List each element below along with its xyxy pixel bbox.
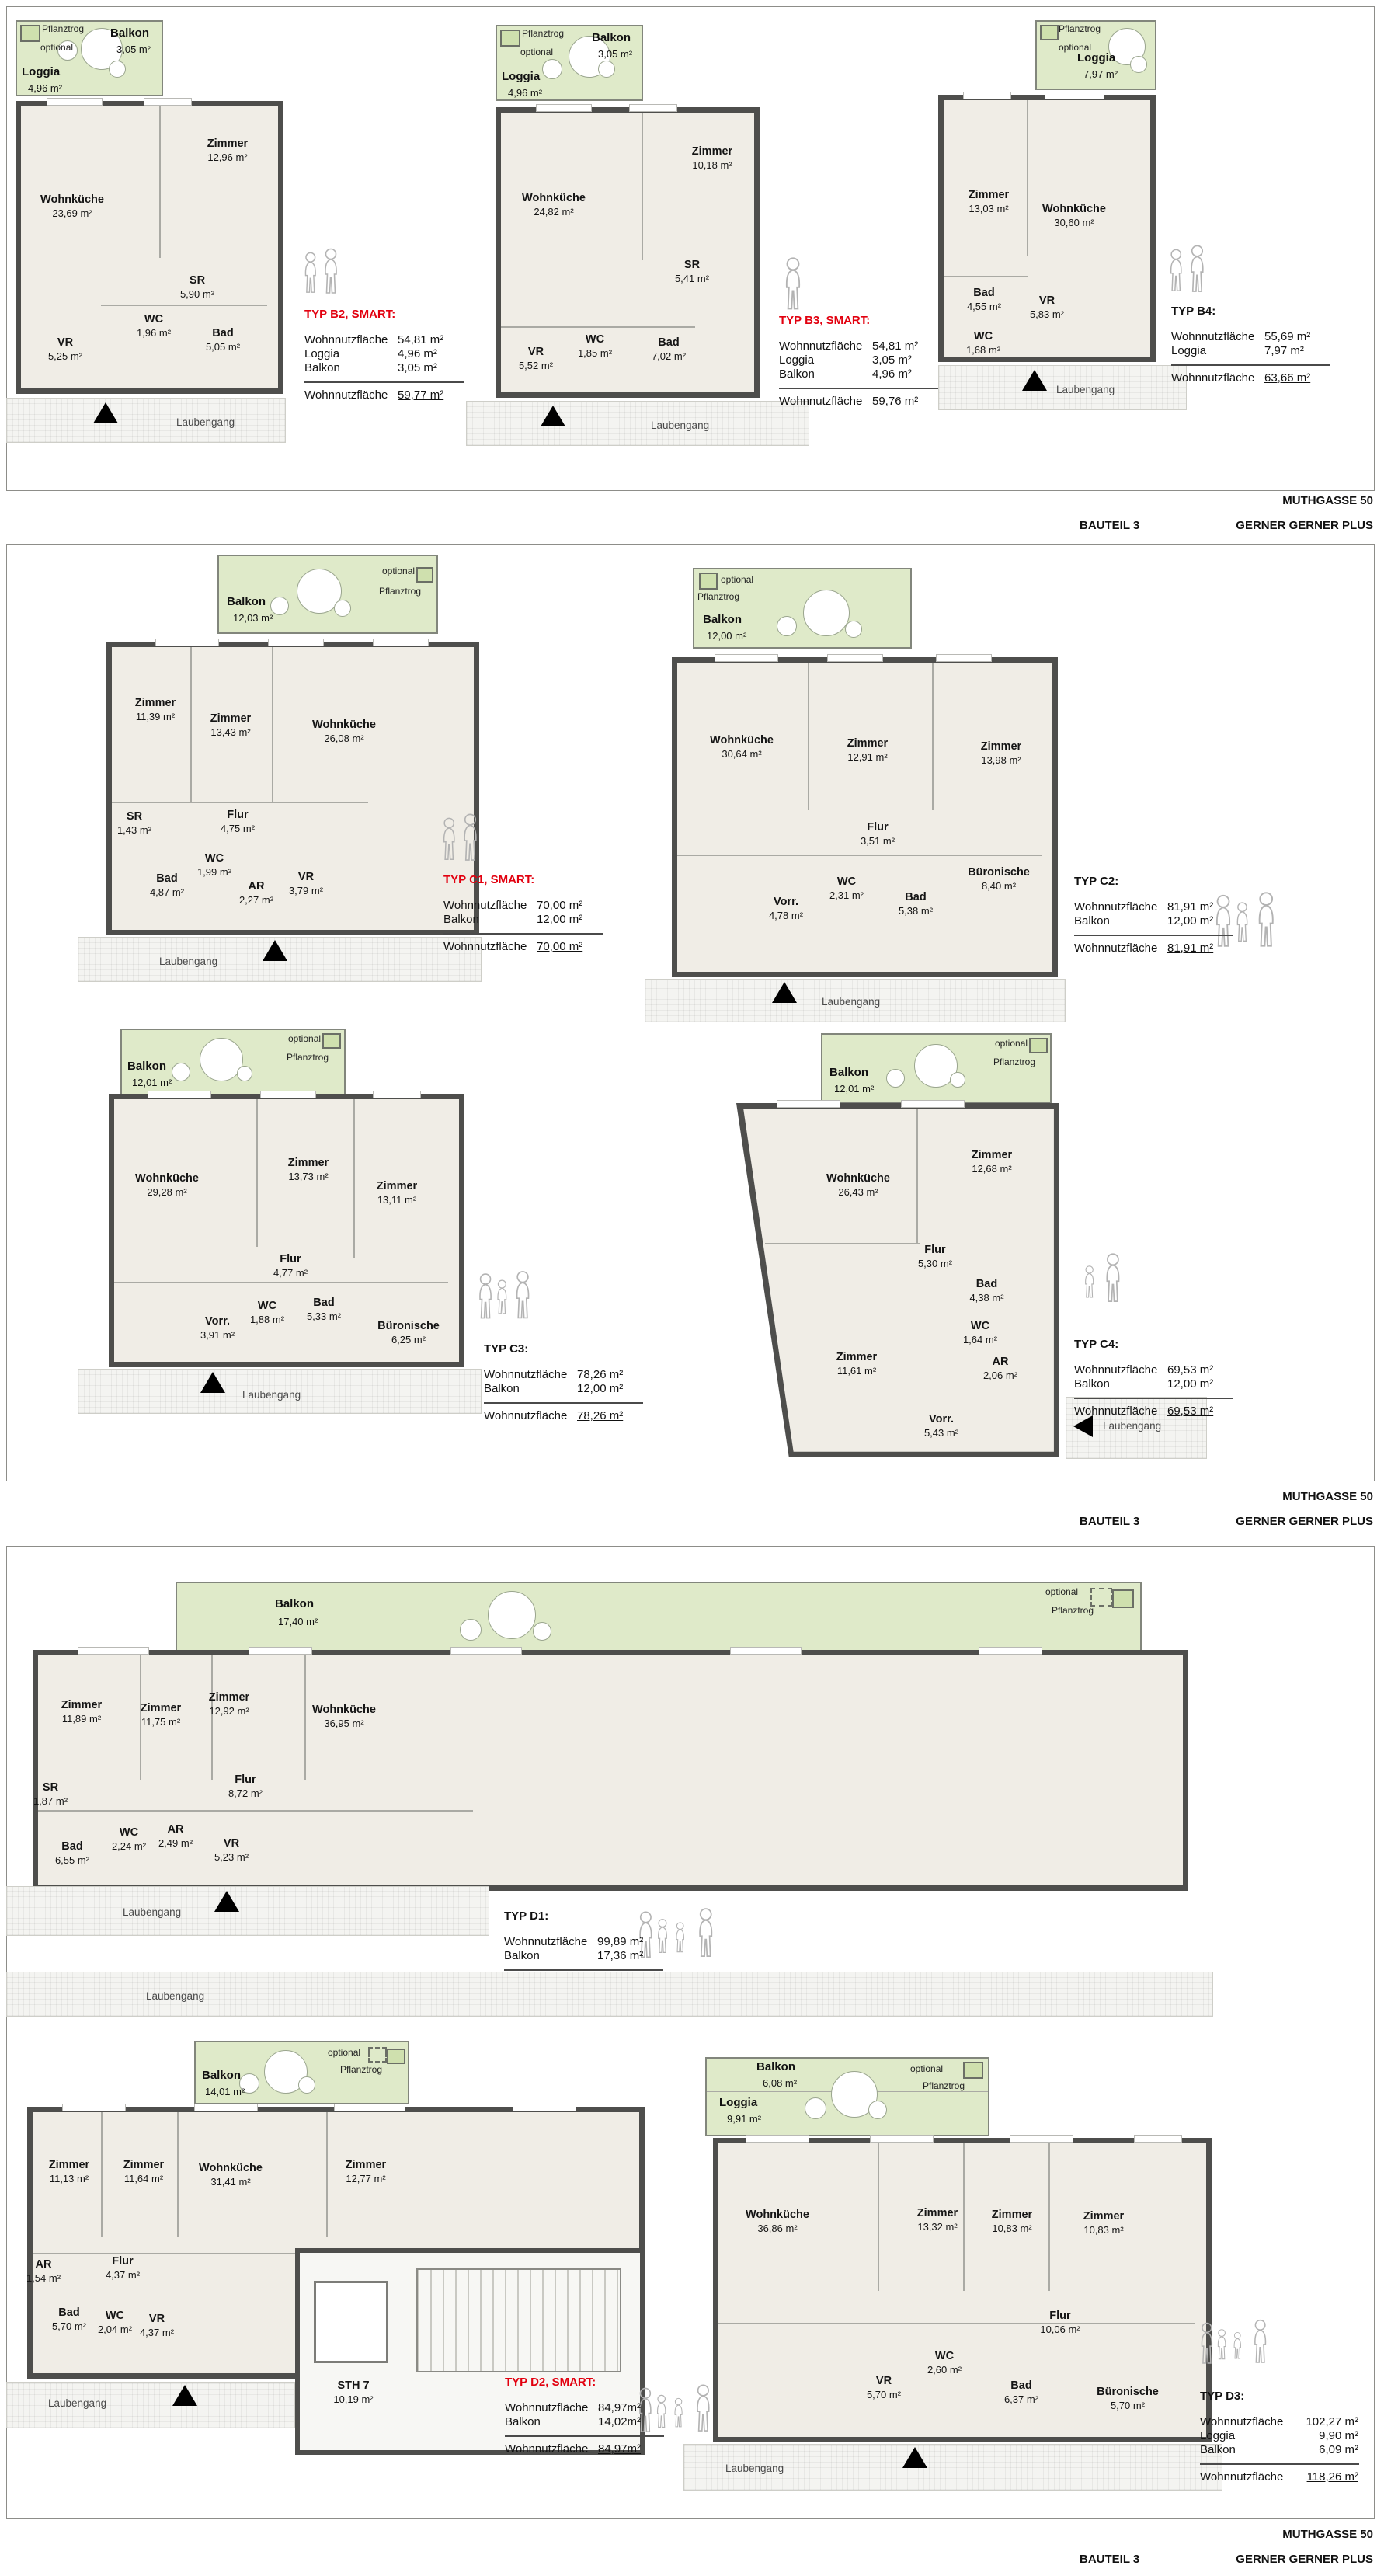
tree-icon (1130, 56, 1147, 73)
loggia-label: Loggia (1077, 51, 1115, 64)
room-label: Zimmer10,83 m² (1069, 2209, 1139, 2237)
bauteil-label: BAUTEIL 3 (1080, 1515, 1139, 1528)
tree-icon (460, 1619, 482, 1641)
laubengang-label: Laubengang (159, 956, 217, 967)
balcony-area-c4: optional Pflanztrog Balkon 12,01 m² (821, 1033, 1052, 1103)
room-label: WC1,96 m² (130, 312, 177, 340)
room-label: Zimmer10,18 m² (677, 144, 747, 172)
entry-arrow-icon (263, 940, 287, 961)
wall (353, 1099, 355, 1258)
balkon-area: 3,05 m² (598, 48, 632, 60)
laubengang-label: Laubengang (176, 416, 235, 428)
room-label: Bad5,33 m² (297, 1296, 351, 1324)
bauteil-label: BAUTEIL 3 (1080, 2553, 1139, 2566)
type-title: TYP B2, SMART: (304, 308, 483, 321)
room-label: Zimmer11,89 m² (48, 1698, 115, 1726)
tree-icon (488, 1591, 536, 1639)
people-silhouette (440, 805, 482, 872)
type-title: TYP C2: (1074, 875, 1253, 888)
planter-icon (1040, 25, 1059, 40)
entry-arrow-icon (93, 402, 118, 423)
balkon-label: Balkon (110, 26, 149, 40)
planter-outline-icon (1090, 1588, 1112, 1607)
entry-arrow-icon (1073, 1415, 1093, 1437)
pflanztrog-label: Pflanztrog (42, 23, 84, 34)
tree-icon (805, 2097, 826, 2119)
room-label: Zimmer12,68 m² (957, 1148, 1027, 1176)
room-label: Flur4,37 m² (99, 2254, 146, 2282)
wall (159, 106, 161, 258)
divider (484, 1402, 643, 1404)
room-label: Zimmer12,77 m² (331, 2158, 401, 2186)
window (249, 1647, 312, 1655)
window (827, 654, 883, 662)
bauteil-label: BAUTEIL 3 (1080, 519, 1139, 532)
tree-icon (886, 1069, 905, 1088)
window (979, 1647, 1042, 1655)
window (936, 654, 992, 662)
room-label: Flur5,30 m² (912, 1243, 958, 1271)
window (450, 1647, 522, 1655)
wall (1048, 2143, 1050, 2291)
room-label: Flur10,06 m² (1033, 2309, 1087, 2337)
room-label: Wohnküche29,28 m² (124, 1171, 210, 1199)
window (730, 1647, 802, 1655)
balkon-area: 3,05 m² (116, 44, 151, 55)
window (334, 2104, 405, 2111)
floorplan-sheet: Pflanztrog optional Balkon 3,05 m² Loggi… (0, 0, 1398, 2576)
laubengang-d1 (6, 1886, 489, 1936)
wall (326, 2112, 328, 2237)
project-name: MUTHGASSE 50 (1282, 494, 1373, 507)
laubengang-label: Laubengang (146, 1990, 204, 2002)
tree-icon (542, 59, 562, 79)
room-label: WC2,60 m² (921, 2349, 968, 2377)
window (715, 654, 778, 662)
room-label: Flur8,72 m² (222, 1773, 269, 1801)
type-info-c1: TYP C1, SMART: Wohnnutzfläche70,00 m² Ba… (443, 873, 622, 954)
room-label: Wohnküche36,86 m² (735, 2208, 820, 2236)
laubengang-label: Laubengang (48, 2397, 106, 2409)
room-label: SR1,43 m² (112, 809, 157, 837)
optional-label: optional (721, 574, 753, 585)
wall (878, 2143, 879, 2291)
room-label: Zimmer11,13 m² (36, 2158, 103, 2186)
type-title: TYP D3: (1200, 2390, 1379, 2403)
balkon-label: Balkon (202, 2069, 241, 2082)
room-label: Flur4,77 m² (267, 1252, 314, 1280)
pflanztrog-label: Pflanztrog (697, 591, 739, 602)
room-label: Zimmer13,98 m² (966, 740, 1036, 768)
type-info-c4: TYP C4: Wohnnutzfläche69,53 m² Balkon12,… (1074, 1338, 1253, 1419)
window (373, 1091, 421, 1098)
divider (1074, 935, 1233, 936)
room-label: Zimmer13,03 m² (954, 188, 1024, 216)
room-label: Zimmer13,32 m² (902, 2206, 972, 2234)
loggia-area: 4,96 m² (28, 82, 62, 94)
room-label: Wohnküche30,64 m² (699, 733, 784, 761)
entry-arrow-icon (772, 982, 797, 1003)
room-label: WC1,88 m² (245, 1299, 289, 1327)
type-info-d2: TYP D2, SMART: Wohnnutzfläche84,97m² Bal… (505, 2376, 683, 2456)
loggia-label: Loggia (719, 2096, 757, 2109)
room-label: Büronische8,40 m² (955, 865, 1042, 893)
room-label: WC1,99 m² (191, 851, 238, 879)
laubengang-label: Laubengang (651, 419, 709, 431)
room-label: SR1,87 m² (28, 1781, 73, 1808)
window (901, 1100, 965, 1108)
loggia-label: Loggia (22, 65, 60, 78)
window (1010, 2135, 1073, 2143)
tree-icon (868, 2101, 887, 2119)
type-info-b3: TYP B3, SMART: Wohnnutzfläche54,81 m² Lo… (779, 314, 958, 409)
balkon-label: Balkon (829, 1066, 868, 1079)
balkon-area: 12,00 m² (707, 630, 746, 642)
wall (501, 326, 695, 328)
wall (677, 855, 1042, 856)
entry-arrow-icon (902, 2447, 927, 2468)
window (144, 98, 192, 106)
tree-icon (237, 1066, 252, 1081)
loggia-label: Loggia (502, 70, 540, 83)
optional-label: optional (995, 1038, 1028, 1049)
divider (443, 933, 603, 935)
balkon-area: 12,01 m² (132, 1077, 172, 1088)
entry-arrow-icon (1022, 370, 1047, 391)
window (155, 639, 219, 646)
wall (256, 1099, 258, 1247)
planter-icon (322, 1033, 341, 1049)
balcony-area-b2: Pflanztrog optional Balkon 3,05 m² Loggi… (16, 20, 163, 96)
room-label: Wohnküche23,69 m² (30, 193, 115, 221)
planter-icon (963, 2062, 983, 2079)
tree-icon (270, 597, 289, 615)
window (194, 2104, 258, 2111)
room-label: Zimmer12,96 m² (193, 137, 263, 165)
pflanztrog-label: Pflanztrog (1059, 23, 1101, 34)
room-label: Bad6,55 m² (45, 1840, 99, 1868)
window (62, 2104, 126, 2111)
room-label: Wohnküche30,60 m² (1031, 202, 1117, 230)
entry-arrow-icon (214, 1891, 239, 1912)
wall (101, 305, 267, 306)
pflanztrog-label: Pflanztrog (522, 28, 564, 39)
tree-icon (533, 1622, 551, 1641)
type-info-b4: TYP B4: Wohnnutzfläche55,69 m² Loggia7,9… (1171, 305, 1350, 385)
room-label: Bad4,38 m² (962, 1277, 1012, 1305)
room-label: Bad6,37 m² (996, 2379, 1047, 2407)
window (777, 1100, 840, 1108)
balcony-area-c3: optional Pflanztrog Balkon 12,01 m² (120, 1029, 346, 1095)
optional-label: optional (40, 42, 73, 53)
room-label: Wohnküche26,08 m² (301, 718, 387, 746)
room-label: Wohnküche31,41 m² (188, 2161, 273, 2189)
wall (38, 1810, 473, 1812)
people-silhouette (1081, 1248, 1125, 1310)
room-label: Zimmer11,39 m² (120, 696, 190, 724)
type-title: TYP B4: (1171, 305, 1350, 318)
room-label: Bad5,70 m² (43, 2306, 95, 2334)
type-info-c2: TYP C2: Wohnnutzfläche81,91 m² Balkon12,… (1074, 875, 1253, 956)
divider (1200, 2463, 1359, 2465)
architect-name: GERNER GERNER PLUS (1236, 519, 1373, 532)
window (513, 2104, 576, 2111)
room-label: VR4,37 m² (134, 2312, 180, 2340)
planter-icon (1112, 1589, 1134, 1608)
room-label: Flur3,51 m² (854, 820, 901, 848)
balcony-area-d3: optional Pflanztrog Balkon 6,08 m² Loggi… (705, 2057, 989, 2136)
pflanztrog-label: Pflanztrog (340, 2064, 382, 2075)
wall (272, 647, 273, 802)
planter-outline-icon (368, 2047, 387, 2063)
laubengang-label: Laubengang (822, 996, 880, 1008)
people-silhouette (1198, 2304, 1272, 2380)
optional-label: optional (520, 47, 553, 57)
loggia-area: 9,91 m² (727, 2113, 761, 2125)
room-label: AR2,06 m² (979, 1355, 1022, 1383)
project-name: MUTHGASSE 50 (1282, 2528, 1373, 2541)
type-info-c3: TYP C3: Wohnnutzfläche78,26 m² Balkon12,… (484, 1342, 662, 1423)
divider (304, 381, 464, 383)
room-label: Zimmer10,83 m² (977, 2208, 1047, 2236)
pflanztrog-label: Pflanztrog (923, 2080, 965, 2091)
tree-icon (777, 616, 797, 636)
room-label: VR5,70 m² (861, 2374, 907, 2402)
room-label: AR2,49 m² (154, 1822, 197, 1850)
window (629, 104, 677, 112)
balcony-area-b3: Pflanztrog optional Balkon 3,05 m² Loggi… (496, 25, 643, 101)
room-label: VR3,79 m² (283, 870, 329, 898)
divider (779, 388, 938, 389)
window (746, 2135, 809, 2143)
tree-icon (598, 61, 615, 78)
window (1045, 92, 1104, 99)
type-title: TYP B3, SMART: (779, 314, 958, 327)
balcony-area-d2: optional Pflanztrog Balkon 14,01 m² (194, 2041, 409, 2104)
wall (177, 2112, 179, 2237)
room-label: WC2,24 m² (106, 1826, 152, 1854)
room-label: Flur4,75 m² (214, 808, 261, 836)
wall (808, 663, 809, 810)
optional-label: optional (910, 2063, 943, 2074)
wall (718, 2323, 1195, 2324)
wall (1027, 100, 1028, 256)
entry-arrow-icon (200, 1372, 225, 1393)
type-title: TYP C1, SMART: (443, 873, 622, 886)
balcony-area-c1: optional Pflanztrog Balkon 12,03 m² (217, 555, 438, 634)
wall (765, 1243, 920, 1244)
elevator (314, 2281, 388, 2363)
balkon-label: Balkon (275, 1597, 314, 1610)
room-label: Bad5,38 m² (889, 890, 943, 918)
tree-icon (334, 600, 351, 617)
wall (114, 1282, 448, 1283)
room-label: Vorr.3,91 m² (194, 1314, 241, 1342)
apartment-c2 (672, 657, 1058, 977)
room-label: WC2,31 m² (823, 875, 870, 903)
architect-name: GERNER GERNER PLUS (1236, 1515, 1373, 1528)
tree-icon (803, 590, 850, 636)
people-silhouette (1167, 236, 1208, 303)
room-label: Wohnküche24,82 m² (511, 191, 596, 219)
laubengang-label: Laubengang (123, 1906, 181, 1918)
planter-icon (416, 567, 433, 583)
type-info-b2: TYP B2, SMART: Wohnnutzfläche54,81 m² Lo… (304, 308, 483, 402)
room-label: Zimmer13,73 m² (273, 1156, 343, 1184)
window (963, 92, 1011, 99)
people-silhouette (781, 250, 805, 315)
room-label: Zimmer13,11 m² (362, 1179, 432, 1207)
wall (916, 1109, 918, 1244)
room-label: Zimmer11,64 m² (110, 2158, 177, 2186)
balkon-label: Balkon (227, 595, 266, 608)
room-label: Bad4,55 m² (957, 286, 1011, 314)
room-label: WC2,04 m² (93, 2309, 137, 2337)
wall (932, 663, 934, 810)
entry-arrow-icon (172, 2385, 197, 2406)
architect-name: GERNER GERNER PLUS (1236, 2553, 1373, 2566)
pflanztrog-label: Pflanztrog (993, 1057, 1035, 1067)
planter-icon (387, 2049, 405, 2064)
balkon-label: Balkon (703, 613, 742, 626)
room-label: Bad5,05 m² (196, 326, 250, 354)
balkon-label: Balkon (592, 31, 631, 44)
type-info-d3: TYP D3: Wohnnutzfläche102,27 m² Loggia9,… (1200, 2390, 1379, 2484)
stairs (416, 2268, 621, 2372)
window (373, 639, 429, 646)
loggia-area: 4,96 m² (508, 87, 542, 99)
balkon-area: 12,01 m² (834, 1083, 874, 1095)
window (268, 639, 324, 646)
divider (504, 1969, 663, 1971)
room-label: Zimmer12,92 m² (194, 1690, 264, 1718)
pflanztrog-label: Pflanztrog (287, 1052, 329, 1063)
wall (944, 276, 1028, 277)
balcony-area-b4: Pflanztrog optional Loggia 7,97 m² (1035, 20, 1156, 90)
planter-icon (20, 25, 40, 42)
balkon-area: 17,40 m² (278, 1616, 318, 1627)
tree-icon (845, 621, 862, 638)
laubengang-label: Laubengang (725, 2463, 784, 2474)
room-label: AR1,54 m² (22, 2257, 65, 2285)
tree-icon (109, 61, 126, 78)
type-title: TYP D1: (504, 1909, 683, 1923)
people-silhouette (475, 1262, 537, 1330)
divider (1171, 364, 1330, 366)
type-title: TYP D2, SMART: (505, 2376, 683, 2389)
wall (112, 802, 368, 803)
room-label: AR2,27 m² (235, 879, 278, 907)
room-label: Zimmer11,75 m² (127, 1701, 194, 1729)
tree-icon (950, 1072, 965, 1088)
balkon-area: 12,03 m² (233, 612, 273, 624)
room-label: Büronische6,25 m² (365, 1319, 452, 1347)
room-label: VR5,25 m² (42, 336, 89, 364)
room-label: WC1,85 m² (572, 332, 618, 360)
balcony-area-c2: optional Pflanztrog Balkon 12,00 m² (693, 568, 912, 649)
wall (642, 113, 643, 260)
room-label: Bad7,02 m² (642, 336, 696, 364)
window (870, 2135, 934, 2143)
divider (505, 2435, 664, 2437)
window (260, 1091, 316, 1098)
optional-label: optional (1045, 1586, 1078, 1597)
room-label: Zimmer11,61 m² (822, 1350, 892, 1378)
window (148, 1091, 211, 1098)
room-label: SR5,90 m² (174, 273, 221, 301)
loggia-area: 7,97 m² (1083, 68, 1118, 80)
room-label: Vorr.4,78 m² (763, 895, 809, 923)
divider (1074, 1398, 1233, 1399)
type-title: TYP C4: (1074, 1338, 1253, 1351)
entry-arrow-icon (541, 406, 565, 426)
balcony-area-d1: optional Pflanztrog Balkon 17,40 m² (176, 1582, 1142, 1652)
pflanztrog-label: Pflanztrog (379, 586, 421, 597)
laubengang-b3 (466, 401, 809, 446)
room-label: Zimmer13,43 m² (196, 712, 266, 740)
people-silhouette (301, 238, 342, 306)
tree-icon (298, 2076, 315, 2094)
optional-label: optional (288, 1033, 321, 1044)
window (78, 1647, 149, 1655)
room-label: Wohnküche36,95 m² (301, 1703, 387, 1731)
room-label: Büronische5,70 m² (1078, 2385, 1177, 2413)
planter-icon (699, 573, 718, 590)
laubengang-label: Laubengang (1103, 1420, 1161, 1432)
room-label: Bad4,87 m² (140, 872, 194, 900)
room-label: WC1,68 m² (960, 329, 1007, 357)
apartment-d1 (33, 1650, 1188, 1891)
wall (190, 647, 192, 802)
laubengang-label: Laubengang (242, 1389, 301, 1401)
planter-icon (500, 30, 520, 47)
window (47, 98, 103, 106)
window (1134, 2135, 1182, 2143)
pflanztrog-label: Pflanztrog (1052, 1605, 1094, 1616)
laubengang-b2 (6, 398, 286, 443)
room-label: Vorr.5,43 m² (918, 1412, 965, 1440)
window (536, 104, 592, 112)
room-label: VR5,52 m² (513, 345, 559, 373)
balkon-area: 14,01 m² (205, 2086, 245, 2097)
wall (33, 2253, 297, 2254)
planter-icon (1029, 1038, 1048, 1053)
room-label: SR5,41 m² (665, 258, 719, 286)
room-label: VR5,23 m² (208, 1836, 255, 1864)
optional-label: optional (382, 566, 415, 576)
balkon-area: 6,08 m² (763, 2077, 797, 2089)
room-label: STH 710,19 m² (318, 2379, 388, 2407)
room-label: VR5,83 m² (1024, 294, 1070, 322)
tree-icon (172, 1063, 190, 1081)
project-name: MUTHGASSE 50 (1282, 1490, 1373, 1503)
laubengang-label: Laubengang (1056, 384, 1115, 395)
type-title: TYP C3: (484, 1342, 662, 1356)
room-label: Zimmer12,91 m² (833, 736, 902, 764)
balkon-label: Balkon (127, 1060, 166, 1073)
room-label: WC1,64 m² (957, 1319, 1003, 1347)
balkon-label: Balkon (756, 2060, 795, 2073)
room-label: Wohnküche26,43 m² (815, 1171, 901, 1199)
optional-label: optional (328, 2047, 360, 2058)
